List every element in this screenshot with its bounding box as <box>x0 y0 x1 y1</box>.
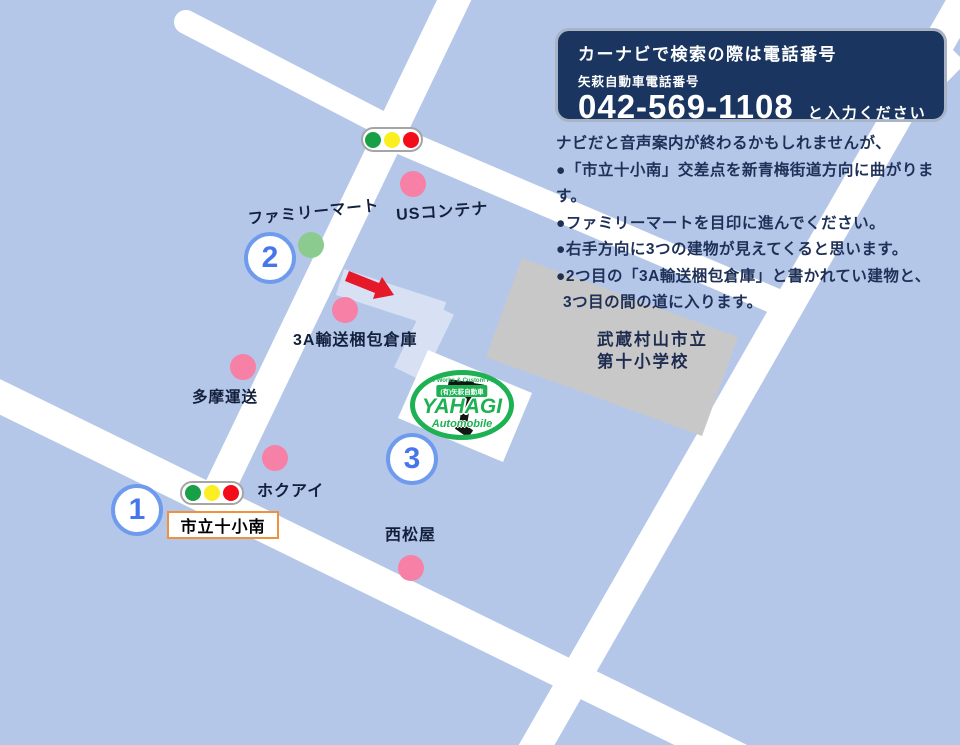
road-northwest-branch <box>186 22 400 133</box>
label-nishimatsuya: 西松屋 <box>385 521 436 545</box>
traffic-light-south <box>180 481 244 505</box>
marker-tama-unsou <box>230 354 256 380</box>
yahagi-logo: New Works & Custom Paint (有)矢萩自動車 YAHAGI… <box>410 370 514 440</box>
directions-text: ナビだと音声案内が終わるかもしれませんが、 ●「市立十小南」交差点を新青梅街道方… <box>556 131 960 317</box>
directions-step-1: ●「市立十小南」交差点を新青梅街道方向に曲がります。 <box>556 158 960 211</box>
route-marker-3: 3 <box>386 433 438 485</box>
directions-step-2: ●ファミリーマートを目印に進んでください。 <box>556 211 960 238</box>
signal-yellow-icon <box>204 485 220 501</box>
logo-subname: Automobile <box>415 418 509 430</box>
label-hokuai: ホクアイ <box>257 477 324 501</box>
label-school-line2: 第十小学校 <box>597 352 708 374</box>
marker-us-container <box>400 171 426 197</box>
directions-step-3: ●右手方向に3つの建物が見えてくると思います。 <box>556 237 960 264</box>
marker-hokuai <box>262 445 288 471</box>
phone-number: 042-569-1108 <box>578 90 794 124</box>
traffic-light-north <box>361 127 423 152</box>
label-school: 武蔵村山市立 第十小学校 <box>597 330 708 373</box>
info-title: カーナビで検索の際は電話番号 <box>578 40 944 65</box>
marker-warehouse-3a <box>332 297 358 323</box>
marker-nishimatsuya <box>398 555 424 581</box>
signal-red-icon <box>403 132 419 148</box>
route-marker-3-number: 3 <box>404 442 421 476</box>
phone-suffix: と入力ください <box>808 102 927 123</box>
marker-family-mart <box>298 232 324 258</box>
logo-badge: (有)矢萩自動車 <box>436 385 487 397</box>
route-marker-1-number: 1 <box>129 493 146 527</box>
label-warehouse-3a: 3A輸送梱包倉庫 <box>293 326 417 350</box>
directions-step-4: ●2つ目の「3A輸送梱包倉庫」と書かれてい建物と、 <box>556 264 960 291</box>
route-marker-2: 2 <box>244 232 296 284</box>
intersection-sign-label: 市立十小南 <box>180 513 265 537</box>
map-page: カーナビで検索の際は電話番号 矢萩自動車電話番号 042-569-1108 と入… <box>0 0 960 745</box>
label-school-line1: 武蔵村山市立 <box>597 330 708 352</box>
directions-intro: ナビだと音声案内が終わるかもしれませんが、 <box>556 131 960 158</box>
signal-green-icon <box>185 485 201 501</box>
route-marker-2-number: 2 <box>262 241 279 275</box>
signal-green-icon <box>365 132 381 148</box>
intersection-sign: 市立十小南 <box>167 511 279 539</box>
logo-arc-text: New Works & Custom Paint <box>415 378 509 384</box>
directions-step-5: 3つ目の間の道に入ります。 <box>556 290 960 317</box>
route-marker-1: 1 <box>111 484 163 536</box>
phone-info-box: カーナビで検索の際は電話番号 矢萩自動車電話番号 042-569-1108 と入… <box>555 28 947 122</box>
signal-yellow-icon <box>384 132 400 148</box>
signal-red-icon <box>223 485 239 501</box>
logo-name: YAHAGI <box>415 395 509 419</box>
phone-row: 042-569-1108 と入力ください <box>578 90 944 124</box>
label-tama-unsou: 多摩運送 <box>192 385 258 407</box>
